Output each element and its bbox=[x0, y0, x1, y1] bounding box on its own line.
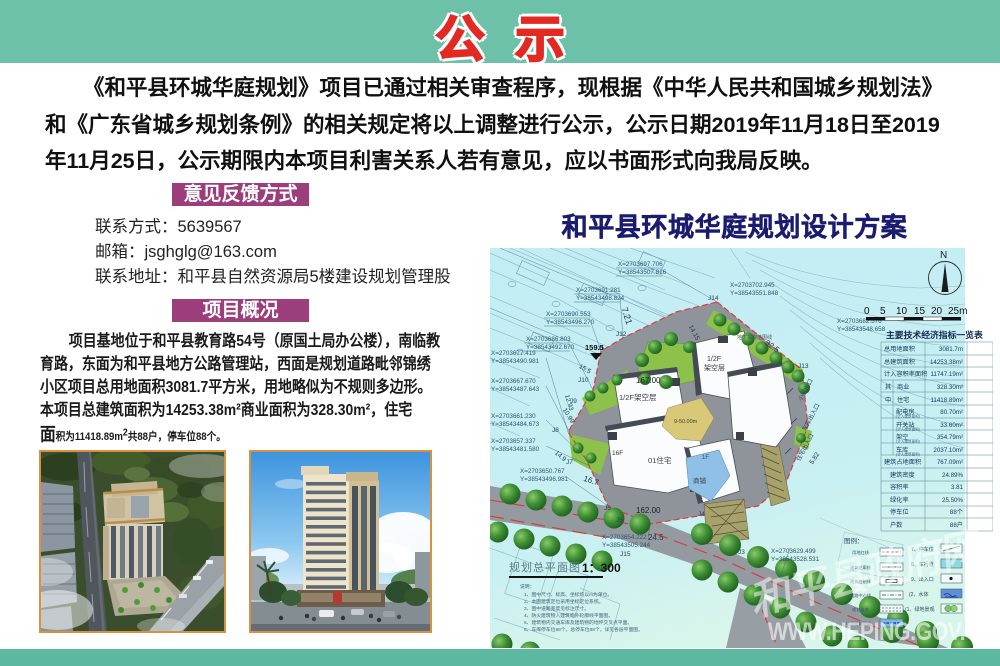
svg-text:80.70m²: 80.70m² bbox=[940, 409, 963, 416]
svg-text:14253.38m²: 14253.38m² bbox=[930, 359, 963, 366]
svg-text:Y=38543481.580: Y=38543481.580 bbox=[491, 446, 540, 453]
svg-text:3081.7m: 3081.7m bbox=[939, 346, 963, 353]
svg-text:总用地面积: 总用地面积 bbox=[884, 345, 915, 353]
svg-text:J5: J5 bbox=[616, 517, 623, 524]
svg-text:10: 10 bbox=[896, 306, 908, 317]
svg-text:X=2703657.337: X=2703657.337 bbox=[491, 438, 536, 445]
svg-text:住宅: 住宅 bbox=[897, 396, 909, 404]
svg-text:Y=38543484.673: Y=38543484.673 bbox=[491, 421, 540, 428]
svg-text:Y=38543487.643: Y=38543487.643 bbox=[491, 386, 540, 393]
svg-text:其: 其 bbox=[885, 384, 891, 391]
svg-text:X=2703691.281: X=2703691.281 bbox=[576, 287, 621, 294]
svg-text:(计入建筑面积): (计入建筑面积) bbox=[896, 452, 920, 457]
svg-text:总建筑面积: 总建筑面积 bbox=[884, 358, 915, 366]
svg-text:J13: J13 bbox=[798, 363, 809, 370]
svg-text:J14: J14 bbox=[708, 295, 719, 302]
svg-text:计入容积率面积: 计入容积率面积 bbox=[884, 370, 927, 378]
svg-text:主要技术经济指标一览表: 主要技术经济指标一览表 bbox=[886, 329, 983, 340]
svg-text:中: 中 bbox=[885, 396, 891, 404]
svg-text:停车位: 停车位 bbox=[890, 508, 909, 516]
svg-text:Y=38543496.981: Y=38543496.981 bbox=[520, 476, 569, 483]
svg-text:J8: J8 bbox=[552, 427, 559, 434]
svg-text:24.5: 24.5 bbox=[648, 533, 664, 542]
svg-text:(2、水体: (2、水体 bbox=[909, 591, 928, 598]
svg-text:2037.10m²: 2037.10m² bbox=[933, 447, 963, 454]
svg-text:01住宅: 01住宅 bbox=[648, 455, 672, 465]
svg-text:33.60m²: 33.60m² bbox=[940, 422, 963, 429]
svg-text:(计入建筑面积): (计入建筑面积) bbox=[896, 427, 920, 432]
svg-text:J12: J12 bbox=[616, 331, 627, 338]
svg-text:767.09m²: 767.09m² bbox=[937, 459, 963, 466]
svg-text:地下车库范围线: 地下车库范围线 bbox=[737, 334, 772, 341]
svg-text:2、本图建筑定位采用坐标定位系统。: 2、本图建筑定位采用坐标定位系统。 bbox=[524, 598, 603, 605]
svg-text:Y=38543505.244: Y=38543505.244 bbox=[602, 542, 651, 549]
svg-text:1/2F架空层: 1/2F架空层 bbox=[619, 392, 657, 402]
svg-text:11747.19m²: 11747.19m² bbox=[930, 371, 963, 378]
svg-text:3.81: 3.81 bbox=[951, 484, 964, 491]
svg-text:Y=38543498.824: Y=38543498.824 bbox=[576, 295, 625, 302]
svg-text:建筑占地面积: 建筑占地面积 bbox=[884, 458, 921, 466]
svg-text:15: 15 bbox=[914, 306, 926, 317]
svg-text:(1、绿地景观: (1、绿地景观 bbox=[905, 606, 934, 613]
svg-text:20: 20 bbox=[931, 306, 943, 317]
svg-text:绿化率: 绿化率 bbox=[890, 496, 909, 504]
svg-text:规划总平面图: 规划总平面图 bbox=[509, 560, 581, 574]
svg-text:N: N bbox=[940, 250, 947, 261]
svg-text:容积率: 容积率 bbox=[890, 483, 909, 491]
svg-text:J15: J15 bbox=[620, 551, 631, 558]
svg-text:Y=38543490.981: Y=38543490.981 bbox=[491, 358, 540, 365]
svg-text:X=2703650.767: X=2703650.767 bbox=[520, 468, 565, 475]
svg-text:X=2703654.222: X=2703654.222 bbox=[602, 534, 647, 541]
svg-text:Y=38543507.816: Y=38543507.816 bbox=[618, 269, 667, 276]
svg-text:167.00: 167.00 bbox=[636, 376, 661, 385]
svg-text:商铺: 商铺 bbox=[693, 476, 707, 485]
svg-text:(计入建筑面积): (计入建筑面积) bbox=[896, 414, 920, 419]
svg-text:X=2703697.706: X=2703697.706 bbox=[618, 261, 663, 268]
svg-text:25.50%: 25.50% bbox=[942, 497, 963, 504]
svg-text:1/2F: 1/2F bbox=[707, 356, 721, 363]
svg-text:6、车库停车位88个，总停车位88个，详见各层平面图。: 6、车库停车位88个，总停车位88个，详见各层平面图。 bbox=[524, 626, 643, 633]
svg-text:户数: 户数 bbox=[890, 521, 903, 529]
svg-text:J10: J10 bbox=[578, 377, 589, 384]
svg-text:5、建筑物内交通车库及建筑物的地坪交叉点平面。: 5、建筑物内交通车库及建筑物的地坪交叉点平面。 bbox=[524, 619, 632, 626]
svg-text:0: 0 bbox=[864, 306, 870, 317]
svg-text:Y=38543496.270: Y=38543496.270 bbox=[546, 319, 595, 326]
svg-text:X=2703661.230: X=2703661.230 bbox=[491, 413, 536, 420]
svg-text:1、图中尺寸、标高、坐标均以m为单位。: 1、图中尺寸、标高、坐标均以m为单位。 bbox=[524, 591, 612, 598]
svg-text:16F: 16F bbox=[612, 450, 623, 457]
svg-text:(计入建筑面积): (计入建筑面积) bbox=[896, 439, 920, 444]
svg-text:3、图中道路宽度见标注尺寸。: 3、图中道路宽度见标注尺寸。 bbox=[524, 605, 589, 612]
svg-text:Y=38543548.658: Y=38543548.658 bbox=[837, 326, 886, 333]
svg-text:159.5: 159.5 bbox=[585, 343, 604, 352]
svg-text:Y=38543551.848: Y=38543551.848 bbox=[730, 290, 779, 297]
svg-text:J7: J7 bbox=[566, 459, 573, 466]
svg-text:商业: 商业 bbox=[897, 383, 909, 391]
svg-text:4、防火建筑物入建筑物外轮廓线平面图。: 4、防火建筑物入建筑物外轮廓线平面图。 bbox=[524, 612, 613, 619]
svg-text:规划道路: 规划道路 bbox=[852, 606, 870, 613]
svg-text:25m: 25m bbox=[948, 306, 967, 317]
svg-text:J6: J6 bbox=[604, 505, 611, 512]
svg-text:1：300: 1：300 bbox=[582, 561, 621, 575]
svg-text:5: 5 bbox=[880, 306, 886, 317]
svg-text:11418.89m²: 11418.89m² bbox=[930, 397, 963, 404]
svg-text:X=2703702.945: X=2703702.945 bbox=[730, 282, 775, 289]
svg-text:162.00: 162.00 bbox=[636, 506, 661, 515]
svg-text:J3: J3 bbox=[738, 549, 745, 556]
svg-text:X=2703667.670: X=2703667.670 bbox=[491, 378, 536, 385]
svg-text:J4: J4 bbox=[698, 511, 705, 518]
svg-text:9-50.00m: 9-50.00m bbox=[674, 419, 698, 425]
svg-text:架空层: 架空层 bbox=[704, 363, 725, 372]
svg-text:X=2703690.553: X=2703690.553 bbox=[546, 311, 591, 318]
svg-text:建筑密度: 建筑密度 bbox=[890, 471, 915, 479]
svg-text:X=2703686.803: X=2703686.803 bbox=[526, 336, 571, 343]
svg-text:1F: 1F bbox=[702, 455, 709, 461]
svg-text:328.30m²: 328.30m² bbox=[937, 384, 963, 391]
svg-text:24.89%: 24.89% bbox=[942, 472, 963, 479]
svg-text:354.79m²: 354.79m² bbox=[937, 434, 963, 441]
svg-text:X=2703677.419: X=2703677.419 bbox=[491, 350, 536, 357]
svg-text:说明：: 说明： bbox=[520, 583, 534, 590]
